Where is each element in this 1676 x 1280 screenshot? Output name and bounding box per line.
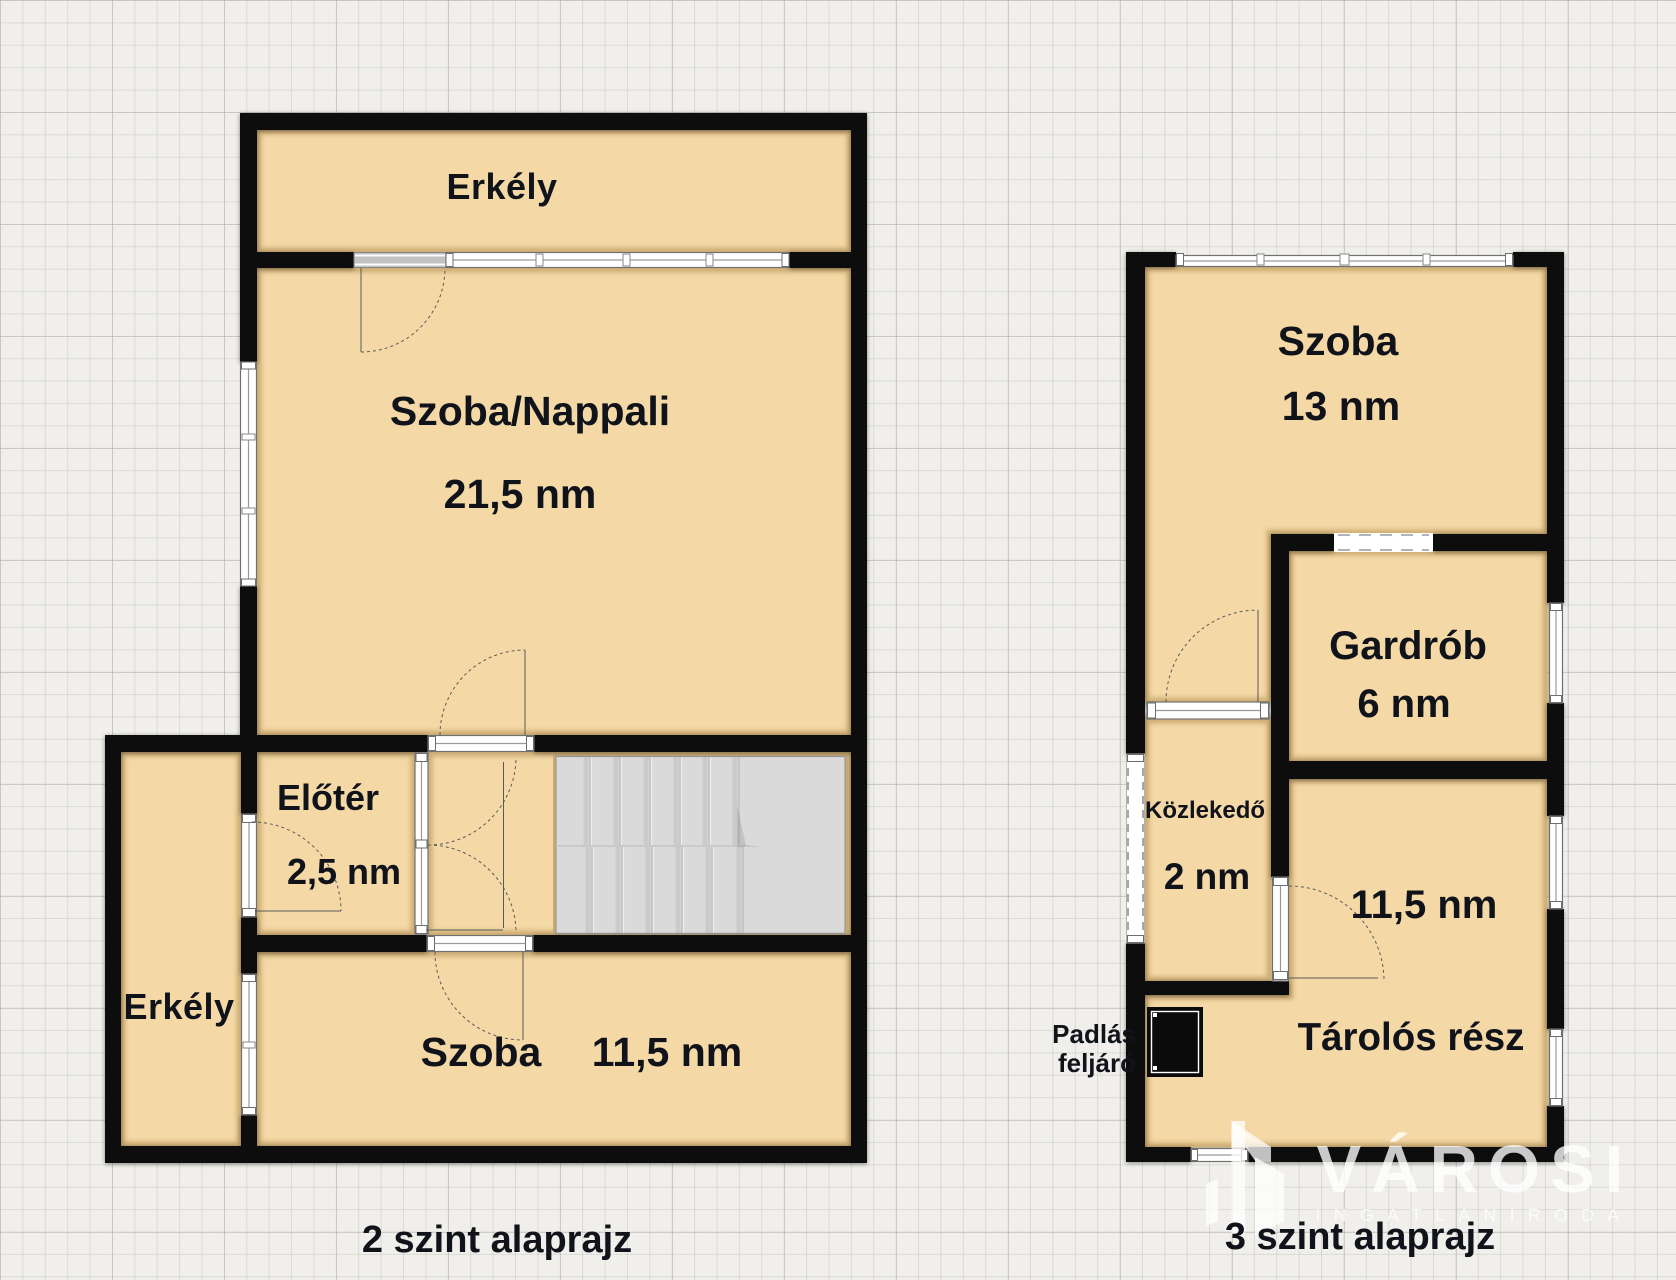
svg-text:21,5 nm: 21,5 nm (444, 471, 597, 517)
svg-text:6 nm: 6 nm (1357, 682, 1450, 726)
svg-text:Szoba: Szoba (1278, 318, 1400, 364)
svg-text:Közlekedő: Közlekedő (1145, 797, 1265, 824)
svg-text:Gardrób: Gardrób (1329, 624, 1487, 668)
svg-text:Erkély: Erkély (123, 986, 234, 1027)
svg-text:2,5 nm: 2,5 nm (287, 851, 401, 892)
svg-text:11,5 nm: 11,5 nm (592, 1029, 742, 1075)
svg-text:Erkély: Erkély (446, 166, 557, 207)
svg-text:VÁROSI: VÁROSI (1317, 1132, 1634, 1207)
svg-text:11,5 nm: 11,5 nm (1351, 883, 1498, 927)
svg-text:Tárolós rész: Tárolós rész (1298, 1016, 1525, 1059)
svg-text:3 szint alaprajz: 3 szint alaprajz (1225, 1216, 1495, 1258)
svg-text:feljáró: feljáró (1058, 1048, 1136, 1078)
svg-text:Előtér: Előtér (277, 777, 379, 818)
svg-text:2 nm: 2 nm (1164, 856, 1250, 897)
svg-text:Szoba/Nappali: Szoba/Nappali (390, 388, 670, 434)
svg-text:Padlás: Padlás (1052, 1019, 1136, 1049)
svg-text:Szoba: Szoba (421, 1029, 543, 1075)
svg-text:2 szint alaprajz: 2 szint alaprajz (362, 1219, 632, 1261)
svg-text:13 nm: 13 nm (1282, 383, 1401, 429)
